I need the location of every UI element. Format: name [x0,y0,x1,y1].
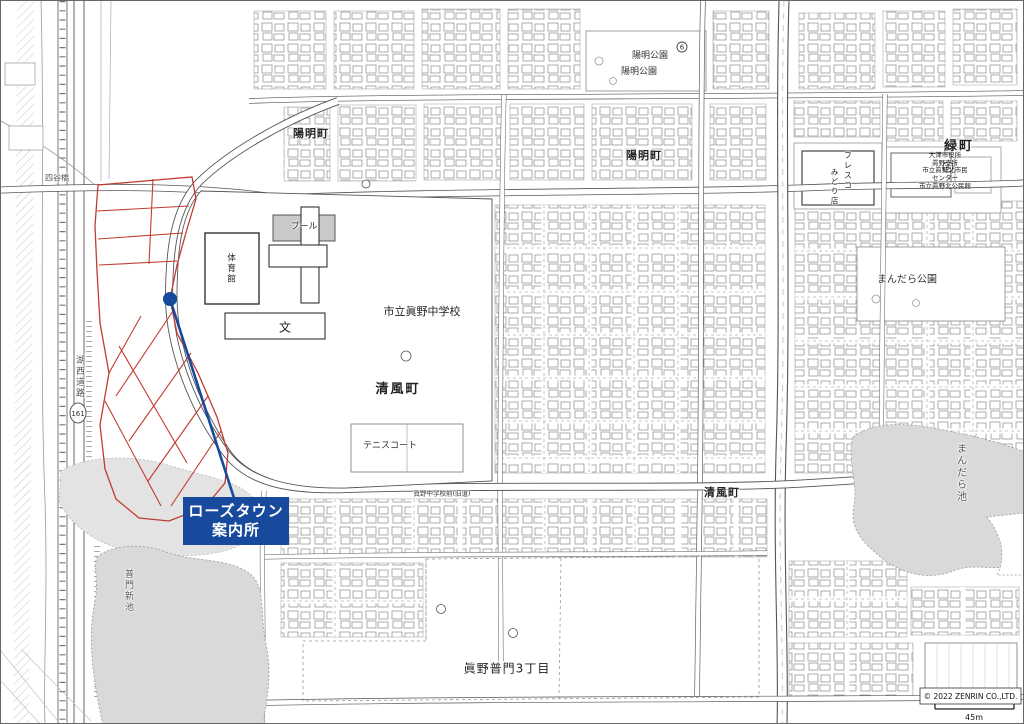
parking-lot [925,643,1017,695]
label-seifu-cho-school: 清風町 [375,383,420,397]
label-gym: 体育館 [225,253,234,285]
svg-text:6: 6 [680,44,685,52]
school-building [225,313,325,339]
svg-text:161: 161 [71,410,84,418]
marker-dot [163,292,177,306]
map-canvas[interactable]: 6 4 161 [1,1,1024,724]
label-bridge: 四谷橋 [45,175,69,184]
marker-label-line1: ローズタウン [188,502,283,522]
label-yomei-cho-east: 陽明町 [626,150,662,162]
label-bus-stop: 眞野中学校前(旧道) [413,490,470,497]
school-map-symbol: 文 [279,321,291,334]
label-mano-fumon: 眞野普門3丁目 [464,662,551,675]
label-fumon-pond: 普門新池 [122,569,132,613]
label-yomei-cho-west: 陽明町 [293,128,329,140]
label-kosei-road: 湖西道路 [73,355,83,399]
label-yomei-park-lower: 陽明公園 [621,68,657,78]
marker-label[interactable]: ローズタウン 案内所 [183,497,289,545]
marker-label-line2: 案内所 [212,521,260,541]
fumon-pond [91,546,269,724]
label-fresco-branch: みどり店 [830,168,838,206]
circled-number-park: 6 [677,42,687,52]
map-container[interactable]: 6 4 161 陽明町 陽明町 陽明公園 陽明公園 緑町 大津市役所 眞野支所 … [0,0,1024,724]
copyright-text: © 2022 ZENRIN CO.,LTD. [921,690,1020,703]
route-161-shield: 161 [70,403,86,423]
label-school: 市立眞野中学校 [384,306,461,318]
label-tennis: テニスコート [363,442,417,452]
label-yomei-park-upper: 陽明公園 [632,52,668,62]
mandara-pond-shape [851,425,1024,576]
scale-label: 45m [965,713,983,722]
label-fresco: フレスコ [843,151,852,191]
label-civic-center: 大津市役所 眞野支所 市立眞野北市民 センター 市立眞野北公民館 [889,152,1001,190]
label-seifu-cho-east: 清風町 [704,487,740,499]
label-mandara-pond: まんだら池 [955,443,966,503]
label-pool: プール [290,223,317,233]
label-mandara-park: まんだら公園 [877,275,937,286]
